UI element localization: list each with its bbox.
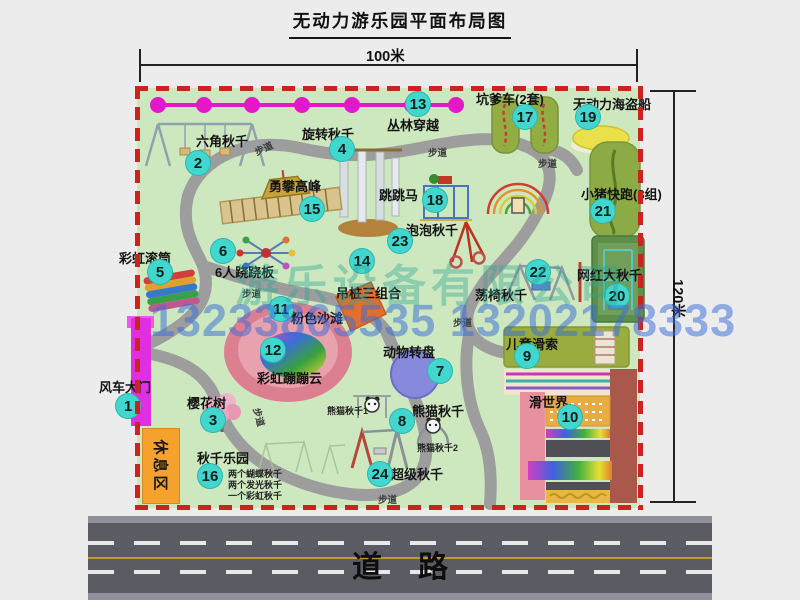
attraction-label-7: 动物转盘 — [383, 342, 435, 361]
attraction-badge-7: 7 — [427, 358, 453, 384]
attraction-label-21: 小猪快跑(3组) — [581, 184, 662, 203]
attraction-label-8: 熊猫秋千 — [412, 401, 464, 420]
attraction-label-11: 粉色沙滩 — [291, 308, 343, 327]
attraction-label-17: 坑爹车(2套) — [476, 89, 544, 108]
attraction-badge-17: 17 — [512, 104, 538, 130]
small-label-1: 熊猫秋千2 — [417, 441, 458, 454]
path-label-3: 步道 — [242, 286, 261, 300]
attraction-badge-20: 20 — [604, 283, 630, 309]
playground-layout-map: 无动力游乐园平面布局图 100米 120米 — [0, 0, 800, 600]
attraction-badge-19: 19 — [575, 104, 601, 130]
attraction-badge-5: 5 — [147, 259, 173, 285]
attraction-badge-13: 13 — [405, 91, 431, 117]
attraction-badge-22: 22 — [525, 259, 551, 285]
park-border-bottom — [135, 505, 643, 510]
attraction-badge-4: 4 — [329, 136, 355, 162]
attraction-badge-14: 14 — [349, 248, 375, 274]
attraction-label-2: 六角秋千 — [196, 131, 248, 150]
attraction-badge-21: 21 — [590, 198, 616, 224]
attraction-badge-11: 11 — [268, 296, 294, 322]
path-label-5: 步道 — [250, 406, 268, 428]
park-border-right — [638, 86, 643, 510]
attraction-badge-10: 10 — [557, 404, 583, 430]
small-label-0: 熊猫秋千1 — [327, 404, 368, 417]
attraction-badge-16: 16 — [197, 463, 223, 489]
attraction-badge-23: 23 — [387, 228, 413, 254]
park-border-top — [135, 86, 643, 91]
attraction-label-23: 泡泡秋千 — [406, 220, 458, 239]
park-border-left — [135, 86, 140, 510]
small-label-4: 一个彩虹秋千 — [228, 489, 282, 502]
attraction-label-13: 丛林穿越 — [387, 115, 439, 134]
attraction-badge-18: 18 — [422, 187, 448, 213]
attraction-label-12: 彩虹蹦蹦云 — [257, 368, 322, 387]
path-label-6: 步道 — [378, 492, 397, 506]
attraction-badge-12: 12 — [260, 337, 286, 363]
attraction-badge-24: 24 — [367, 461, 393, 487]
attraction-badge-6: 6 — [210, 238, 236, 264]
attraction-label-15: 勇攀高峰 — [269, 176, 321, 195]
attraction-label-18: 跳跳马 — [379, 185, 418, 204]
path-label-1: 步道 — [428, 145, 447, 159]
path-label-0: 步道 — [252, 138, 275, 159]
attraction-label-24: 超级秋千 — [391, 464, 443, 483]
attraction-label-22: 荡椅秋千 — [475, 285, 527, 304]
attraction-badge-9: 9 — [514, 343, 540, 369]
path-label-4: 步道 — [453, 315, 472, 329]
attraction-label-14: 吊桩三组合 — [336, 283, 401, 302]
attraction-badge-3: 3 — [200, 407, 226, 433]
attraction-label-20: 网红大秋千 — [577, 265, 642, 284]
attraction-badge-15: 15 — [299, 196, 325, 222]
attraction-badge-2: 2 — [185, 150, 211, 176]
attraction-badge-8: 8 — [389, 408, 415, 434]
path-label-2: 步道 — [538, 156, 557, 170]
attraction-label-6: 6人跷跷板 — [215, 262, 274, 281]
